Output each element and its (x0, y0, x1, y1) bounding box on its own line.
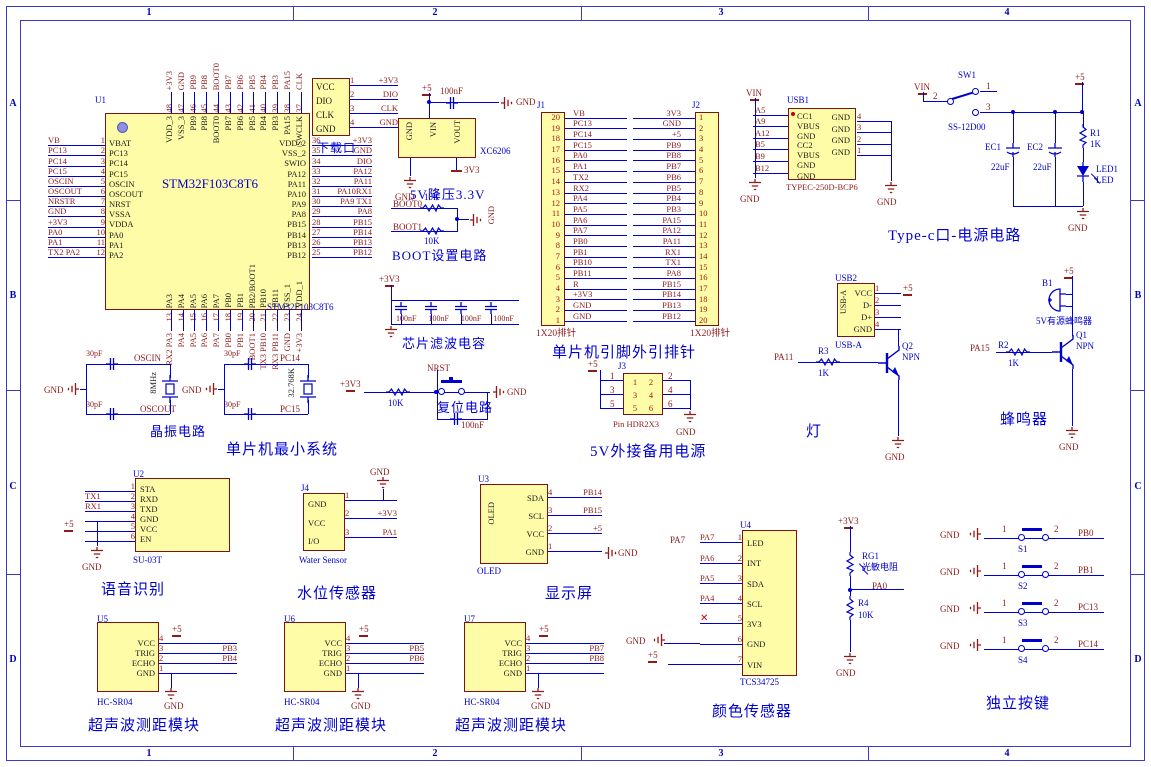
caption-sonar-3: 超声波测距模块 (455, 714, 567, 735)
wire (898, 330, 899, 346)
mcu-pin[interactable]: PB642 (234, 42, 246, 113)
pin-number: 2 (668, 371, 673, 381)
pin-row[interactable]: PB6 (633, 172, 695, 183)
mcu-pin[interactable]: PB339 (269, 42, 281, 113)
wire (664, 643, 700, 644)
net-label: BOOT0 (211, 63, 221, 90)
pin-name-col: PA4 (175, 252, 187, 309)
pin-name: OSCOUT (109, 189, 143, 199)
ldr-ref: RG1 (862, 551, 879, 561)
u4-pin-rows: PA71PA62PA53PA44✕567 (700, 523, 742, 665)
pin-row[interactable]: ✕5 (700, 604, 742, 624)
net-label: PB0 (1078, 528, 1094, 538)
capacitor-icon[interactable] (424, 302, 438, 314)
u2-pin-rows: 1TX12RX13456 (85, 482, 135, 542)
pin-name: VCC (468, 638, 522, 648)
net-label: PA8 (358, 207, 372, 216)
pin-row[interactable]: TX2 (565, 172, 627, 183)
resistor-icon[interactable] (420, 204, 444, 212)
pin-row[interactable]: PB12 (633, 311, 695, 322)
pin-name: VDDA (109, 219, 143, 229)
net-label: GND (176, 72, 186, 90)
mcu-pin[interactable]: 16PA6 (198, 313, 210, 371)
pin-number: 17 (211, 313, 221, 322)
pin-row[interactable]: PA5 (565, 204, 627, 215)
pin-name: D+ (850, 311, 872, 323)
net-label: PB5 (409, 644, 424, 653)
pin-row[interactable]: 1 (548, 534, 602, 552)
net-label: PC15 (573, 141, 592, 150)
pin-number: 1 (159, 664, 163, 673)
pin-row[interactable]: 1 (346, 664, 424, 674)
frame-tick (1131, 574, 1145, 575)
frame-tick (293, 747, 294, 761)
pin-number: 15 (541, 165, 560, 176)
pin-row[interactable]: 1 (159, 664, 237, 674)
pin-row[interactable]: PA53 (700, 564, 742, 584)
gnd-label: GND (877, 197, 897, 207)
gnd-label: GND (351, 701, 371, 711)
wire (850, 620, 851, 652)
mcu-pin[interactable]: PA1538 (281, 42, 293, 113)
pin-row[interactable]: 3 (857, 122, 891, 134)
net-label: CLK (294, 73, 304, 90)
net-label: GND (48, 207, 66, 216)
pin-name: SCL (747, 594, 765, 614)
resistor-icon[interactable] (846, 596, 854, 620)
gnd-label: GND (940, 641, 960, 651)
net-label: 3V3 (666, 109, 681, 118)
crystal-icon[interactable] (300, 375, 316, 403)
net-label: PB7 (666, 162, 681, 171)
pin-row[interactable]: PA6 (565, 215, 627, 226)
pin-number: 9 (541, 230, 560, 241)
pin-row[interactable]: +3V3 (565, 290, 627, 301)
pin-number: 2 (131, 492, 135, 501)
pin-name: RXD (140, 494, 158, 504)
pin-row[interactable]: PB9 (633, 140, 695, 151)
mcu-pin[interactable]: GND47 (175, 42, 187, 113)
pin-name: SCL (504, 507, 544, 525)
pin-name: TRIG (288, 648, 342, 658)
frame-tick (581, 747, 582, 761)
j1-part: 1X20排针 (536, 329, 576, 339)
pin-number: 12 (541, 198, 560, 209)
wire (1013, 112, 1014, 143)
pin-number: 3 (738, 574, 742, 583)
pin-name: ECHO (101, 658, 155, 668)
net-label: +3V3 (48, 218, 67, 227)
pin-row[interactable]: PB4 (633, 194, 695, 205)
net-label: PB13 (662, 301, 681, 310)
pin-number: 5 (738, 614, 742, 623)
pin-row[interactable]: B5 (753, 139, 788, 151)
caption-keys: 独立按键 (986, 692, 1050, 713)
mcu-pin[interactable]: PB743 (222, 42, 234, 113)
download-pins: 1+3V32DIO3CLK4GND (350, 72, 398, 128)
gnd-icon (493, 385, 505, 399)
pin-row[interactable]: PA44 (700, 584, 742, 604)
net-label: GND (354, 146, 372, 155)
buzzer-name: 5V有源蜂鸣器 (1036, 316, 1092, 326)
q-ref: Q1 (1076, 330, 1087, 340)
pin-row[interactable]: 5 (85, 522, 135, 532)
capacitor-icon[interactable] (106, 357, 118, 371)
power-net-3v3: +3V3 (379, 274, 400, 287)
wire (538, 674, 539, 688)
net-pa0: PA0 (872, 581, 887, 591)
pin-name: TRIG (101, 648, 155, 658)
cap-value: 100nF (428, 314, 448, 323)
mcu-pin[interactable]: 15PA5 (187, 313, 199, 371)
pin-number: 4 (699, 144, 717, 155)
pin-number: 5 (541, 272, 560, 283)
mcu-pin[interactable]: TX2 PA212 (48, 248, 105, 258)
mcu-pin[interactable]: 17PA7 (210, 313, 222, 371)
pin-row[interactable]: 3 (875, 306, 901, 318)
gnd-label: GND (836, 668, 856, 678)
pin-cell: 3 (633, 390, 637, 400)
crystal-icon[interactable] (162, 375, 178, 403)
pin-row[interactable]: 1 (526, 664, 604, 674)
pin-row[interactable]: PA8 (633, 268, 695, 279)
pin-name: GND (308, 495, 326, 514)
capacitor-icon[interactable] (244, 357, 256, 371)
pin-row[interactable]: PB0 (565, 236, 627, 247)
pin-row[interactable]: A9 (753, 116, 788, 128)
pin-row[interactable]: RX1 (633, 247, 695, 258)
pin-row[interactable]: A5 (753, 104, 788, 116)
pin-number: 6 (131, 532, 135, 541)
wire (1066, 306, 1073, 307)
pin-row[interactable]: PC13 (565, 119, 627, 130)
caption-sonar-1: 超声波测距模块 (88, 714, 200, 735)
pin-name: GND (797, 161, 820, 171)
gnd-label: GND (370, 467, 390, 477)
res-value: 10K (858, 610, 874, 620)
resistor-icon[interactable] (386, 388, 410, 396)
net-label: PC14 (48, 157, 67, 166)
j3-ref: J3 (618, 361, 626, 371)
pin-number: 16 (199, 313, 209, 322)
resistor-icon[interactable] (1006, 348, 1030, 356)
pin-row[interactable]: PB1 (565, 247, 627, 258)
mcu-pin[interactable]: BOOT044 (210, 42, 222, 113)
cap-value: 30pF (86, 400, 102, 410)
resistor-icon[interactable] (1079, 124, 1087, 148)
capacitor-icon[interactable] (106, 407, 118, 421)
pin-row[interactable]: 2PB6 (346, 654, 424, 664)
reg-part: XC6206 (480, 146, 511, 156)
pin-row[interactable]: GND (565, 300, 627, 311)
pin-row[interactable]: GND (565, 311, 627, 322)
res-value: 10K (424, 192, 440, 202)
pin-row[interactable]: PA71 (700, 523, 742, 543)
pin-row[interactable]: 6 (85, 532, 135, 542)
net-label: PA11 (354, 177, 372, 186)
net-label: PC13 (573, 119, 592, 128)
pin-row[interactable]: 2DIO (350, 86, 398, 100)
mcu-pin[interactable]: 14PA4 (175, 313, 187, 371)
net-label: TX1 (85, 492, 101, 501)
pin-number: 41 (247, 104, 257, 113)
net-label: PA6 (199, 333, 209, 347)
caption-buzzer: 蜂鸣器 (1000, 408, 1048, 429)
u5-pin-rows: 43PB32PB41 (159, 634, 237, 674)
net-label: +3V3 (379, 76, 398, 85)
net-label: PB15 (583, 506, 602, 515)
key-row[interactable]: GND 1 S1 2 PB0 (938, 520, 1118, 557)
pin-number: 25 (312, 248, 321, 257)
pin-row[interactable]: PA0 (565, 151, 627, 162)
pin-name: PA2 (109, 250, 143, 260)
pin-row[interactable]: 1 (345, 482, 397, 501)
cap-value: 30pF (224, 400, 240, 410)
zone-col-1b: 1 (140, 748, 158, 759)
net-label: PB14 (662, 290, 681, 299)
u2-pin-names: STARXDTXDGNDVCCEN (140, 484, 158, 544)
j1-pin-rows: VBPC13PC14PC15PA0PA1TX2RX2PA4PA5PA6PA7PB… (565, 108, 627, 322)
gnd-label: GND (618, 548, 638, 558)
pin-number: 5 (610, 399, 615, 409)
wire (358, 674, 359, 688)
mcu-pin[interactable]: 29PA8 (312, 207, 372, 217)
mcu-pin[interactable]: 21TX3 PB10 (257, 313, 269, 371)
electrolytic-cap-icon[interactable] (1047, 143, 1063, 157)
capacitor-icon[interactable] (454, 302, 468, 314)
zone-row-a2: A (1129, 98, 1147, 109)
pin-name: PA4 (176, 294, 186, 308)
mcu-left-pins: VB1PC132PC143PC154OSCIN5OSCOUT6NRSTR7GND… (48, 136, 105, 258)
wire (980, 91, 997, 92)
pin-row[interactable]: A12 (753, 127, 788, 139)
mcu-pin[interactable]: CLK37 (293, 42, 305, 113)
net-label: PA11 (663, 237, 681, 246)
pin-name: 3V3 (747, 614, 765, 634)
pin-row[interactable]: 2 (875, 294, 901, 306)
led-icon[interactable] (1075, 162, 1091, 182)
pin-row[interactable]: 1 (857, 145, 891, 157)
pin-row[interactable]: TX1 (633, 258, 695, 269)
u3-vertical-label: OLED (486, 502, 496, 525)
resistor-icon[interactable] (816, 358, 840, 366)
pin-name-col: VSS_3 (175, 116, 187, 160)
pin-name: PB2/BOOT1 (247, 264, 257, 308)
j4-part: Water Sensor (299, 555, 347, 565)
pin-row[interactable]: PB3 (633, 204, 695, 215)
pin-number: 1 (986, 81, 991, 91)
mcu-pin[interactable]: PB946 (187, 42, 199, 113)
pin-number: 11 (541, 208, 560, 219)
mcu-pin[interactable]: PB440 (257, 42, 269, 113)
pin-name: GND (797, 171, 815, 181)
usb2-ref: USB2 (835, 273, 857, 283)
pin-row[interactable]: 4 (85, 512, 135, 522)
mcu-pin[interactable]: 25PB12 (312, 248, 372, 258)
usb1-right-names: GNDGNDGNDGND (810, 112, 850, 158)
button-contact (1018, 571, 1025, 578)
mcu-pin[interactable]: GND8 (48, 207, 105, 217)
pin-row[interactable]: PA1 (565, 161, 627, 172)
mcu-pin[interactable]: 13RX2 PA3 (163, 313, 175, 371)
pin-row[interactable]: 1+3V3 (350, 72, 398, 86)
zone-row-b2: B (1129, 290, 1147, 301)
net-label: +5 (593, 524, 602, 533)
gnd-icon (1065, 427, 1079, 439)
pin-row[interactable]: B9 (753, 150, 788, 162)
pin-row[interactable]: 4 (857, 110, 891, 122)
pin-row[interactable]: PB10 (565, 258, 627, 269)
net-label: TX2 PA2 (48, 248, 80, 257)
photoresistor-icon[interactable] (846, 552, 854, 576)
pin-row[interactable]: 4PB14 (548, 480, 602, 498)
pin-name: PA8 (250, 209, 306, 219)
pin-number: 34 (312, 157, 321, 166)
pin-row[interactable]: 4 (875, 318, 901, 330)
pin-name: PB6 (235, 116, 245, 131)
pin-row[interactable]: PA15 (633, 215, 695, 226)
power-net-5v: +5 (172, 624, 182, 637)
mcu-pin[interactable]: PC132 (48, 146, 105, 156)
net-label: PA1 (573, 162, 587, 171)
pin-name-col: PB5 (246, 116, 258, 160)
wire (1066, 294, 1073, 295)
wire (391, 324, 519, 325)
resistor-icon[interactable] (420, 227, 444, 235)
pin-name: D- (850, 299, 872, 311)
pin-row[interactable]: PB14 (633, 290, 695, 301)
mcu-pin[interactable]: 18PB0 (222, 313, 234, 371)
pin-number: 1 (857, 146, 861, 155)
pin-row[interactable]: 1 (875, 282, 901, 294)
pin-number: 2 (101, 146, 105, 155)
pin-number: 20 (699, 315, 717, 326)
pin-row[interactable]: B12 (753, 162, 788, 174)
pin-row[interactable]: 3V3 (633, 108, 695, 119)
net-label: DIO (383, 90, 398, 99)
pin-number: 4 (548, 488, 552, 497)
net-label: PB14 (353, 228, 372, 237)
key-row[interactable]: GND 1 S3 2 PC13 (938, 594, 1118, 631)
pin-row[interactable]: 2PB8 (526, 654, 604, 664)
capacitor-icon[interactable] (446, 96, 458, 110)
res-ref: R2 (998, 340, 1009, 350)
pin-number: 11 (97, 238, 105, 247)
pin-number: 23 (282, 313, 292, 322)
pin-row[interactable]: PB8 (633, 151, 695, 162)
gnd-icon (969, 601, 981, 615)
pin-row[interactable]: PB11 (565, 268, 627, 279)
pin-row[interactable]: PA4 (565, 194, 627, 205)
pin-row[interactable]: 3PB15 (548, 498, 602, 516)
net-label: PB14 (583, 488, 602, 497)
pin-row[interactable]: PA7 (565, 226, 627, 237)
pin-row[interactable]: 2+5 (548, 516, 602, 534)
pin-row[interactable]: 3PA1 (345, 519, 397, 538)
pin-row[interactable]: RX13 (85, 502, 135, 512)
button-contact (1018, 645, 1025, 652)
npn-transistor-icon[interactable] (1052, 335, 1078, 369)
pin-row[interactable]: RX2 (565, 183, 627, 194)
pin-row[interactable]: PB13 (633, 300, 695, 311)
switch-contact (972, 88, 979, 95)
gnd-icon (164, 688, 178, 700)
mcu-pin[interactable]: PC143 (48, 156, 105, 166)
pin-row[interactable]: VB (565, 108, 627, 119)
pin-number: 6 (738, 635, 742, 644)
pin-row[interactable]: PB5 (633, 183, 695, 194)
gnd-icon (653, 633, 665, 647)
pin-row[interactable]: PB15 (633, 279, 695, 290)
u7-pin-rows: 43PB72PB81 (526, 634, 604, 674)
wire (850, 589, 851, 596)
frame-tick (581, 6, 582, 20)
pin-row[interactable]: 3CLK (350, 100, 398, 114)
capacitor-icon[interactable] (484, 302, 498, 314)
pin-row[interactable]: +5 (633, 129, 695, 140)
pin-number: 2 (345, 509, 349, 518)
pin-row[interactable]: PB7 (633, 161, 695, 172)
u3-pin-rows: 4PB143PB152+51 (548, 480, 602, 552)
pin-row[interactable]: 2+3V3 (345, 501, 397, 520)
net-label: PB8 (589, 654, 604, 663)
mcu-pin[interactable]: 34DIO (312, 156, 372, 166)
pin-number: 33 (312, 167, 321, 176)
gnd-label: GND (1059, 442, 1079, 452)
pin-row[interactable]: 2 (857, 133, 891, 145)
wire (364, 392, 490, 393)
buzzer-icon[interactable] (1044, 288, 1066, 312)
pin-name: ECHO (288, 658, 342, 668)
key-row[interactable]: GND 1 S2 2 PB1 (938, 557, 1118, 594)
npn-transistor-icon[interactable] (878, 346, 904, 380)
pin-number: 11 (699, 219, 717, 230)
pin-row[interactable]: PC14 (565, 129, 627, 140)
pin-name: VDD_1 (294, 281, 304, 308)
pin-row[interactable]: 6 (700, 624, 742, 644)
pin-row[interactable]: 4GND (350, 114, 398, 128)
mcu-pin[interactable]: PB845 (198, 42, 210, 113)
power-net-5v: +5 (648, 650, 658, 663)
electrolytic-cap-icon[interactable] (1005, 143, 1021, 157)
pin-number: 2 (1054, 598, 1059, 608)
pin-number: 10 (541, 219, 560, 230)
pin-row[interactable]: PC15 (565, 140, 627, 151)
frame-tick (6, 390, 20, 391)
capacitor-icon[interactable] (394, 302, 408, 314)
net-label: B12 (755, 164, 769, 173)
pin-row[interactable]: 2PB4 (159, 654, 237, 664)
pin-row[interactable]: GND (633, 119, 695, 130)
pin-name-col: PA5 (187, 252, 199, 309)
wire (1082, 82, 1083, 113)
net-label: GND (573, 301, 591, 310)
capacitor-icon[interactable] (244, 407, 256, 421)
wire (86, 414, 170, 415)
pin-row[interactable]: PA62 (700, 543, 742, 563)
res-ref: R4 (858, 598, 869, 608)
key-row[interactable]: GND 1 S4 2 PC14 (938, 631, 1118, 668)
pin-number: 2 (1054, 561, 1059, 571)
pin-row[interactable]: 7 (700, 645, 742, 665)
pin-row[interactable]: R (565, 279, 627, 290)
power-net-3v3: +3V3 (838, 516, 859, 529)
mcu-pin[interactable]: +3V348 (163, 42, 175, 113)
mcu-pin[interactable]: PB541 (246, 42, 258, 113)
pin-row[interactable]: PA12 (633, 226, 695, 237)
pin-name-col: PA15 (281, 116, 293, 160)
pin-row[interactable]: PA11 (633, 236, 695, 247)
